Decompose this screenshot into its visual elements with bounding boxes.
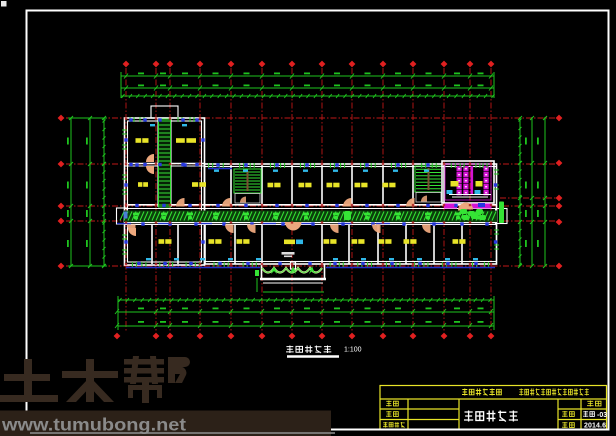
svg-text:-03: -03 [597,412,607,419]
svg-text:1:100: 1:100 [344,347,362,354]
svg-text:www.tumubong.net: www.tumubong.net [1,415,186,435]
svg-text:2014.6: 2014.6 [584,423,606,430]
